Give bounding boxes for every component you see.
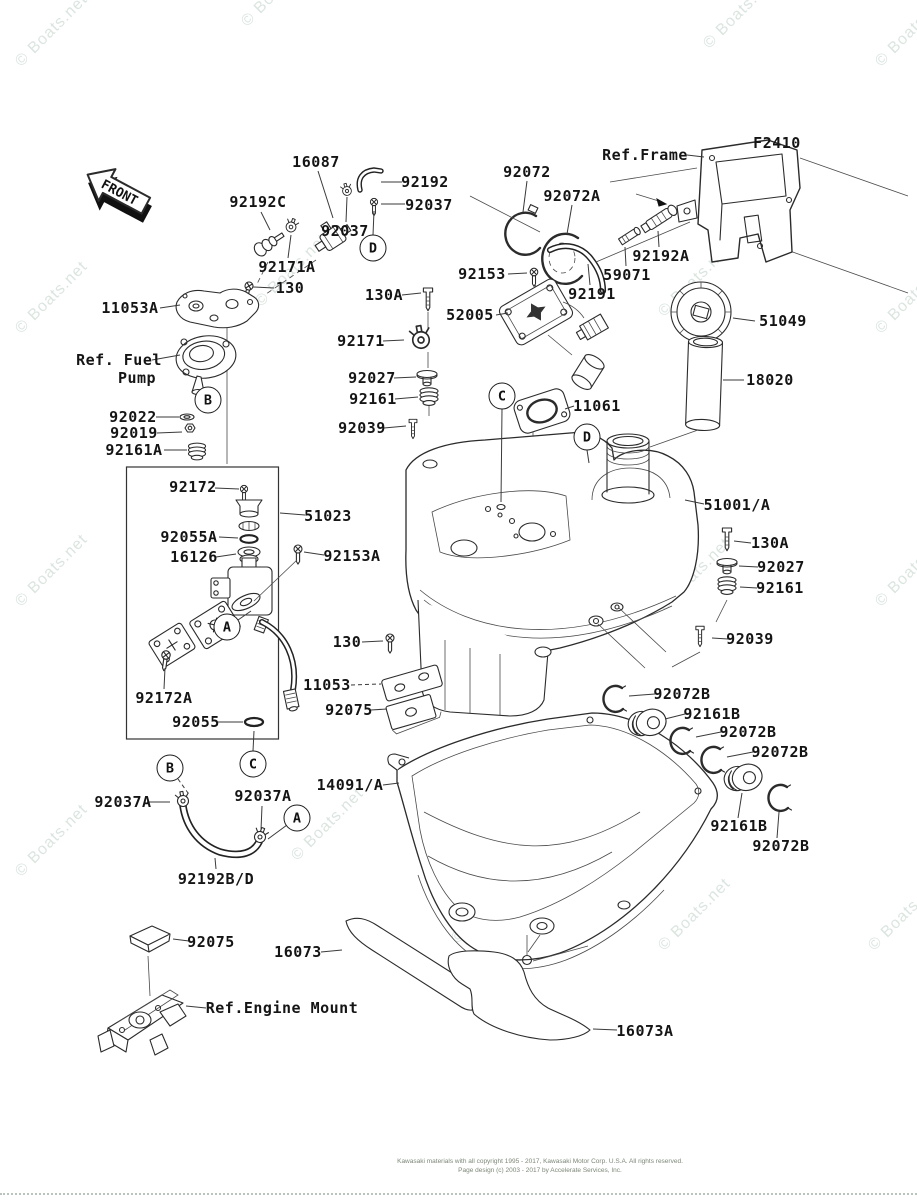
- part-label: 130: [276, 279, 305, 297]
- part-label: 92161: [349, 390, 397, 408]
- part-label: 92192A: [632, 247, 689, 265]
- part-label: 51001/A: [704, 496, 771, 514]
- part-label: 92072B: [751, 743, 808, 761]
- filler-tube: [650, 336, 723, 447]
- leader-line: [567, 205, 572, 234]
- leader-line: [395, 397, 418, 399]
- callout-bubble: B: [195, 387, 222, 414]
- leader-line: [740, 587, 757, 588]
- leader-line: [696, 732, 721, 737]
- part-label: 18020: [746, 371, 794, 389]
- leader-line: [625, 247, 626, 266]
- parts-diagram-page: © Boats.net© Boats.net© Boats.net© Boats…: [0, 0, 917, 1200]
- part-label: 92153: [458, 265, 506, 283]
- leader-line: [727, 752, 753, 757]
- leader-line: [346, 197, 347, 222]
- part-label: 11061: [573, 397, 621, 415]
- part-label: 92172A: [135, 689, 192, 707]
- leader-line: [588, 264, 590, 285]
- part-label: 16087: [292, 153, 340, 171]
- footer-line-1: Kawasaki materials with all copyright 19…: [300, 1157, 780, 1166]
- leader-line: [658, 231, 659, 247]
- part-label: 92039: [338, 419, 386, 437]
- part-label: 92072B: [719, 723, 776, 741]
- callout-bubble: A: [214, 614, 241, 641]
- part-label: 92161A: [105, 441, 162, 459]
- leader-line: [280, 513, 305, 515]
- leader-line: [593, 1029, 617, 1030]
- tank-mount-parts-left: [409, 288, 438, 439]
- front-direction-arrow: FRONT: [76, 159, 159, 230]
- part-label: 52005: [446, 306, 494, 324]
- footer-line-2: Page design (c) 2003 - 2017 by Accelerat…: [300, 1166, 780, 1175]
- leader-line: [371, 709, 387, 710]
- leader-line: [738, 793, 742, 818]
- part-label: Ref. Fuel: [76, 351, 162, 369]
- tank-tray: [388, 713, 717, 969]
- engine-mount: [98, 990, 186, 1055]
- leader-line: [383, 340, 404, 341]
- part-label: 92037: [321, 222, 369, 240]
- part-label: 92192C: [229, 193, 286, 211]
- part-label: 92075: [325, 701, 373, 719]
- leader-line: [402, 293, 421, 295]
- leader-line: [508, 273, 527, 274]
- leader-line: [304, 552, 324, 555]
- part-label: Pump: [118, 369, 156, 387]
- part-label: 11053: [303, 676, 351, 694]
- part-label: 92161B: [683, 705, 740, 723]
- leader-line: [288, 235, 291, 258]
- part-label: 92171: [337, 332, 385, 350]
- part-label: 14091/A: [317, 776, 384, 794]
- leader-line: [215, 488, 239, 489]
- fuel-tank: [406, 433, 699, 716]
- leader-line: [739, 566, 758, 567]
- leader-line: [157, 432, 182, 433]
- copyright-footer: Kawasaki materials with all copyright 19…: [300, 1157, 780, 1175]
- part-label: 92019: [110, 424, 158, 442]
- bottom-dotted-divider: [0, 1193, 917, 1195]
- leader-line: [268, 825, 287, 839]
- part-label: 92075: [187, 933, 235, 951]
- leader-line: [394, 377, 416, 378]
- leader-line: [362, 641, 383, 642]
- leader-line: [384, 426, 406, 428]
- part-label: 92055: [172, 713, 220, 731]
- part-label: 92192: [401, 173, 449, 191]
- leader-line: [215, 858, 216, 869]
- part-label: 51023: [304, 507, 352, 525]
- part-label: 92037: [405, 196, 453, 214]
- part-label: Ref.Engine Mount: [206, 999, 359, 1017]
- part-label: 59071: [603, 266, 651, 284]
- leader-line: [351, 684, 381, 685]
- part-label: 92055A: [160, 528, 217, 546]
- leader-line: [665, 714, 685, 719]
- part-label: 92161B: [710, 817, 767, 835]
- part-label: 16126: [170, 548, 218, 566]
- part-label: 92161: [756, 579, 804, 597]
- part-label: 92192B/D: [178, 870, 254, 888]
- part-label: 51049: [759, 312, 807, 330]
- part-label: 92027: [348, 369, 396, 387]
- leader-line: [253, 731, 254, 751]
- part-label: 16073: [274, 943, 322, 961]
- leader-line: [777, 812, 779, 838]
- part-label: 92037A: [94, 793, 151, 811]
- leader-line: [186, 1006, 206, 1008]
- part-label: 92171A: [258, 258, 315, 276]
- part-label: 92191: [568, 285, 616, 303]
- part-label: 130A: [751, 534, 789, 552]
- leader-line: [216, 554, 236, 557]
- part-label: 92172: [169, 478, 217, 496]
- callout-bubble: A: [284, 805, 311, 832]
- fuel-cap: [671, 282, 731, 342]
- callout-bubble: D: [360, 235, 387, 262]
- leader-line: [261, 806, 262, 830]
- leader-line: [321, 950, 342, 952]
- part-label: Ref.Frame: [602, 146, 688, 164]
- leader-line: [261, 212, 270, 230]
- exploded-diagram-art: FRONT: [0, 0, 917, 1200]
- part-label: 92072B: [752, 837, 809, 855]
- leader-line: [383, 783, 399, 785]
- leader-line: [523, 181, 527, 212]
- part-label: 92039: [726, 630, 774, 648]
- leader-line: [219, 537, 238, 538]
- part-label: 130A: [365, 286, 403, 304]
- leader-line: [318, 171, 333, 218]
- leader-line: [253, 287, 274, 288]
- callout-bubble: C: [240, 751, 267, 778]
- part-label: 92153A: [323, 547, 380, 565]
- part-label: 92072: [503, 163, 551, 181]
- leader-line: [733, 318, 755, 321]
- callout-bubble: B: [157, 755, 184, 782]
- leader-line: [734, 541, 751, 543]
- fuel-pump-assembly: [173, 289, 258, 464]
- part-label: 92072B: [653, 685, 710, 703]
- callout-bubble: C: [489, 383, 516, 410]
- callout-bubble: D: [574, 424, 601, 451]
- part-label: 11053A: [101, 299, 158, 317]
- leader-line: [629, 694, 655, 696]
- part-label: 16073A: [616, 1022, 673, 1040]
- part-label: 130: [333, 633, 362, 651]
- part-label: 92027: [757, 558, 805, 576]
- part-label: 92037A: [234, 787, 291, 805]
- part-label: F2410: [753, 134, 801, 152]
- part-label: 92072A: [543, 187, 600, 205]
